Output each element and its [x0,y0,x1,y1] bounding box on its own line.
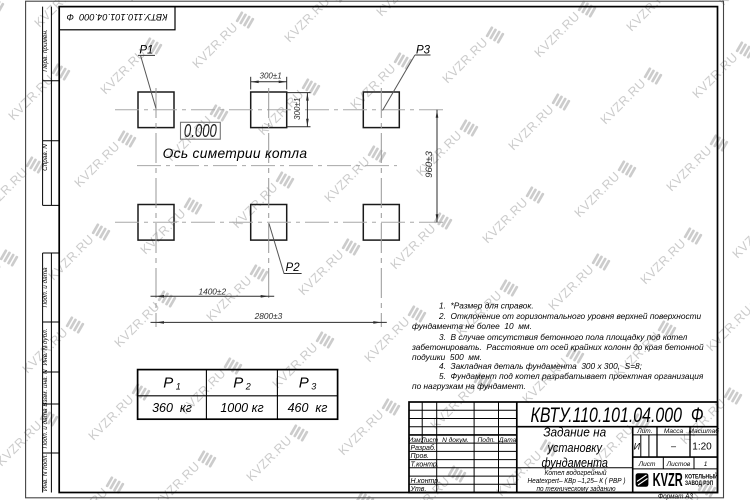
svg-text:KVZR.RU: KVZR.RU [112,299,163,350]
svg-text:P 1: P 1 [163,375,181,392]
svg-text:KVZR.RU: KVZR.RU [72,139,123,190]
svg-text:KVZR.RU: KVZR.RU [138,206,189,257]
svg-text:KVZR.RU: KVZR.RU [348,61,399,112]
svg-text:KVZR.RU: KVZR.RU [86,392,137,443]
svg-text:KVZR.RU: KVZR.RU [322,154,373,205]
svg-text:Формат А3: Формат А3 [658,492,694,500]
svg-text:KVZR.RU: KVZR.RU [506,102,557,153]
svg-text:Инв. N подл.: Инв. N подл. [41,454,49,491]
svg-text:1: 1 [704,461,708,468]
svg-text:KVZR.RU: KVZR.RU [230,180,281,231]
svg-text:KVZR.RU: KVZR.RU [152,459,203,500]
svg-text:4. Закладная деталь фундамент: 4. Закладная деталь фундамента 300 х 300… [439,361,643,371]
svg-text:KVZR.RU: KVZR.RU [638,236,689,287]
svg-text:1000 кг: 1000 кг [220,401,263,415]
svg-text:KVZR.RU: KVZR.RU [204,273,255,324]
svg-text:КВТУ.110.101.04.000 Ф: КВТУ.110.101.04.000 Ф [66,11,167,22]
svg-text:Инв. N дубл.: Инв. N дубл. [41,329,49,366]
svg-text:KVZR.RU: KVZR.RU [546,262,597,313]
svg-text:Лит.: Лит. [636,428,652,435]
svg-text:KVZR.RU: KVZR.RU [336,407,387,458]
svg-text:1400±2: 1400±2 [198,287,226,297]
svg-text:KVZR.RU: KVZR.RU [480,195,531,246]
svg-text:KVZR.RU: KVZR.RU [0,418,45,469]
svg-text:Справ. N: Справ. N [42,144,49,171]
svg-text:1. *Размер для справок.: 1. *Размер для справок. [439,301,534,311]
svg-text:Масштаб: Масштаб [689,427,720,435]
svg-text:KVZR.RU: KVZR.RU [190,20,241,71]
svg-text:Дата: Дата [498,437,517,444]
svg-text:300±1: 300±1 [260,71,282,80]
svg-text:Лист: Лист [420,437,438,444]
svg-text:KVZR.RU: KVZR.RU [6,72,57,123]
svg-text:Лист: Лист [638,461,656,468]
svg-text:Утв.: Утв. [410,486,427,493]
svg-text:Масса: Масса [664,428,684,435]
svg-text:KVZR.RU: KVZR.RU [690,50,741,101]
svg-text:300±1: 300±1 [293,98,302,120]
svg-text:KVZR.RU: KVZR.RU [46,232,97,283]
svg-text:460 кг: 460 кг [288,401,328,415]
svg-text:забетонировать. Расстояние от: забетонировать. Расстояние от осей крайн… [411,342,704,352]
svg-text:Задание на: Задание на [543,425,606,440]
svg-text:Подп.: Подп. [478,436,496,444]
svg-text:KVZR.RU: KVZR.RU [532,9,583,60]
svg-text:KVZR: KVZR [653,470,683,491]
svg-text:Т.контр.: Т.контр. [411,461,439,468]
svg-text:KVZR.RU: KVZR.RU [598,76,649,127]
svg-text:KVZR.RU: KVZR.RU [362,314,413,365]
svg-text:КОТЕЛЬНЫЙ: КОТЕЛЬНЫЙ [685,472,718,481]
svg-text:KVZR.RU: KVZR.RU [440,35,491,86]
svg-text:360 кг: 360 кг [152,401,192,415]
svg-text:KVZR.RU: KVZR.RU [0,258,5,309]
svg-text:по техническому заданию: по техническому заданию [537,484,617,493]
svg-text:P1: P1 [139,45,153,57]
svg-text:фундамента не более 10 мм.: фундамента не более 10 мм. [412,321,532,331]
svg-text:P 3: P 3 [299,375,317,392]
svg-text:KVZR.RU: KVZR.RU [704,303,750,354]
svg-text:P 2: P 2 [233,375,251,392]
svg-text:960±3: 960±3 [424,151,435,178]
svg-text:Взам. инв. N: Взам. инв. N [42,369,49,407]
svg-text:KVZR.RU: KVZR.RU [244,433,295,484]
svg-text:P2: P2 [286,262,301,274]
svg-text:KVZR.RU: KVZR.RU [664,143,715,194]
svg-text:Перв. примен.: Перв. примен. [42,29,49,71]
svg-text:2. Отклонение от горизонтальн: 2. Отклонение от горизонтального уровня … [438,311,702,321]
svg-text:3. В случае отсутствия бетонн: 3. В случае отсутствия бетонного пола пл… [439,332,688,342]
svg-text:KVZR.RU: KVZR.RU [624,0,675,34]
svg-text:KVZR.RU: KVZR.RU [124,0,175,4]
svg-text:Ось симетрии котла: Ось симетрии котла [163,146,308,161]
svg-text:И: И [634,442,641,452]
svg-text:KVZR.RU: KVZR.RU [572,169,623,220]
svg-text:по нагрузкам на фундамент.: по нагрузкам на фундамент. [412,381,526,391]
svg-text:N докум.: N докум. [442,436,469,444]
svg-text:ЗАВОД РЭП: ЗАВОД РЭП [685,481,713,488]
svg-text:KVZR.RU: KVZR.RU [296,247,347,298]
svg-text:Разраб.: Разраб. [411,444,436,452]
svg-text:KVZR.RU: KVZR.RU [374,0,425,19]
svg-text:1:20: 1:20 [692,441,712,452]
svg-text:0.000: 0.000 [184,121,217,141]
svg-text:2800±3: 2800±3 [254,311,283,321]
svg-text:Пров.: Пров. [411,453,430,460]
svg-text:KVZR.RU: KVZR.RU [414,128,465,179]
svg-text:KVZR.RU: KVZR.RU [744,463,750,500]
svg-text:Н.контр.: Н.контр. [411,478,441,485]
svg-text:Подп. и дата: Подп. и дата [41,267,49,307]
svg-text:KVZR.RU: KVZR.RU [730,210,750,261]
svg-text:–: – [670,441,677,451]
svg-text:5. Фундамент под котел разраб: 5. Фундамент под котел разрабатывает про… [439,371,704,381]
svg-text:KVZR.RU: KVZR.RU [388,221,439,272]
svg-text:установку: установку [547,440,604,455]
svg-text:Листов: Листов [666,461,691,468]
svg-text:Подп. и дата: Подп. и дата [41,408,49,448]
